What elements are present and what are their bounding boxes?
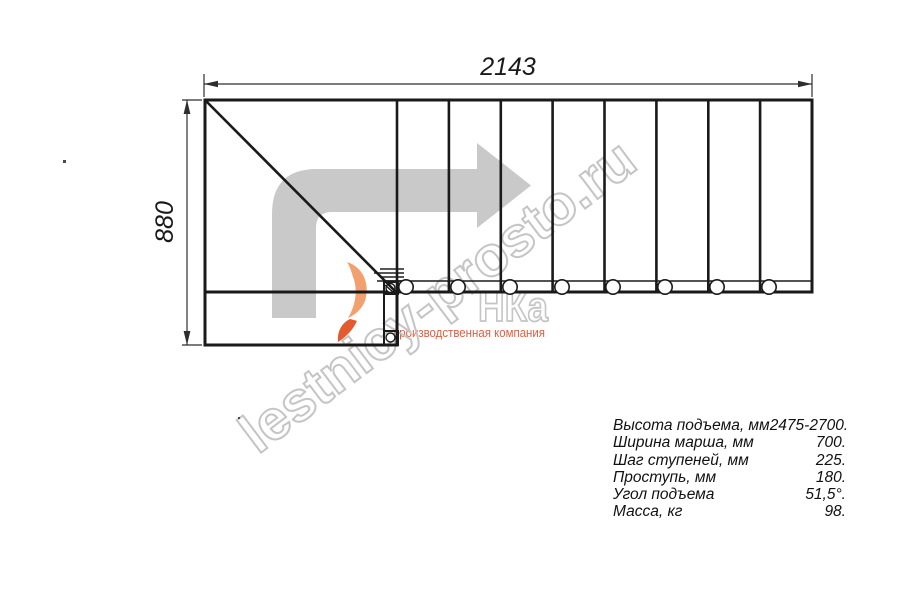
spec-row: Угол подъема 51,5°. bbox=[613, 486, 846, 503]
spec-value: 98. bbox=[824, 503, 846, 520]
dim-arrow-up bbox=[184, 100, 191, 114]
spec-label: Угол подъема bbox=[613, 486, 714, 503]
dimension-height-label: 880 bbox=[151, 201, 179, 243]
spec-value: 225. bbox=[816, 452, 846, 469]
dim-arrow-left bbox=[204, 81, 218, 87]
spec-row: Проступь, мм 180. bbox=[613, 469, 846, 486]
spec-row: Масса, кг 98. bbox=[613, 503, 846, 520]
spec-label: Ширина марша, мм bbox=[613, 434, 754, 451]
spec-label: Высота подъема, мм bbox=[613, 417, 770, 434]
spec-value: 180. bbox=[816, 469, 846, 486]
logo-swoosh-upper bbox=[347, 262, 367, 318]
dimension-width-label: 2143 bbox=[479, 53, 536, 81]
paper-speck bbox=[63, 160, 66, 163]
spec-label: Проступь, мм bbox=[613, 469, 716, 486]
spec-label: Масса, кг bbox=[613, 503, 682, 520]
spec-value: 700. bbox=[816, 434, 846, 451]
spec-value: 51,5°. bbox=[805, 486, 846, 503]
spec-row: Шаг ступеней, мм 225. bbox=[613, 452, 846, 469]
dim-arrow-down bbox=[184, 331, 191, 345]
spec-label: Шаг ступеней, мм bbox=[613, 452, 749, 469]
spec-row: Высота подъема, мм 2475-2700. bbox=[613, 417, 846, 434]
spec-value: 2475-2700. bbox=[770, 417, 848, 434]
spec-row: Ширина марша, мм 700. bbox=[613, 434, 846, 451]
paper-speck bbox=[238, 417, 240, 419]
spec-table: Высота подъема, мм 2475-2700. Ширина мар… bbox=[613, 417, 846, 521]
staircase-drawing-page: НКа производственная компания lestnicy-p… bbox=[0, 0, 900, 600]
dim-arrow-right bbox=[798, 81, 812, 87]
dimension-height bbox=[182, 100, 202, 345]
